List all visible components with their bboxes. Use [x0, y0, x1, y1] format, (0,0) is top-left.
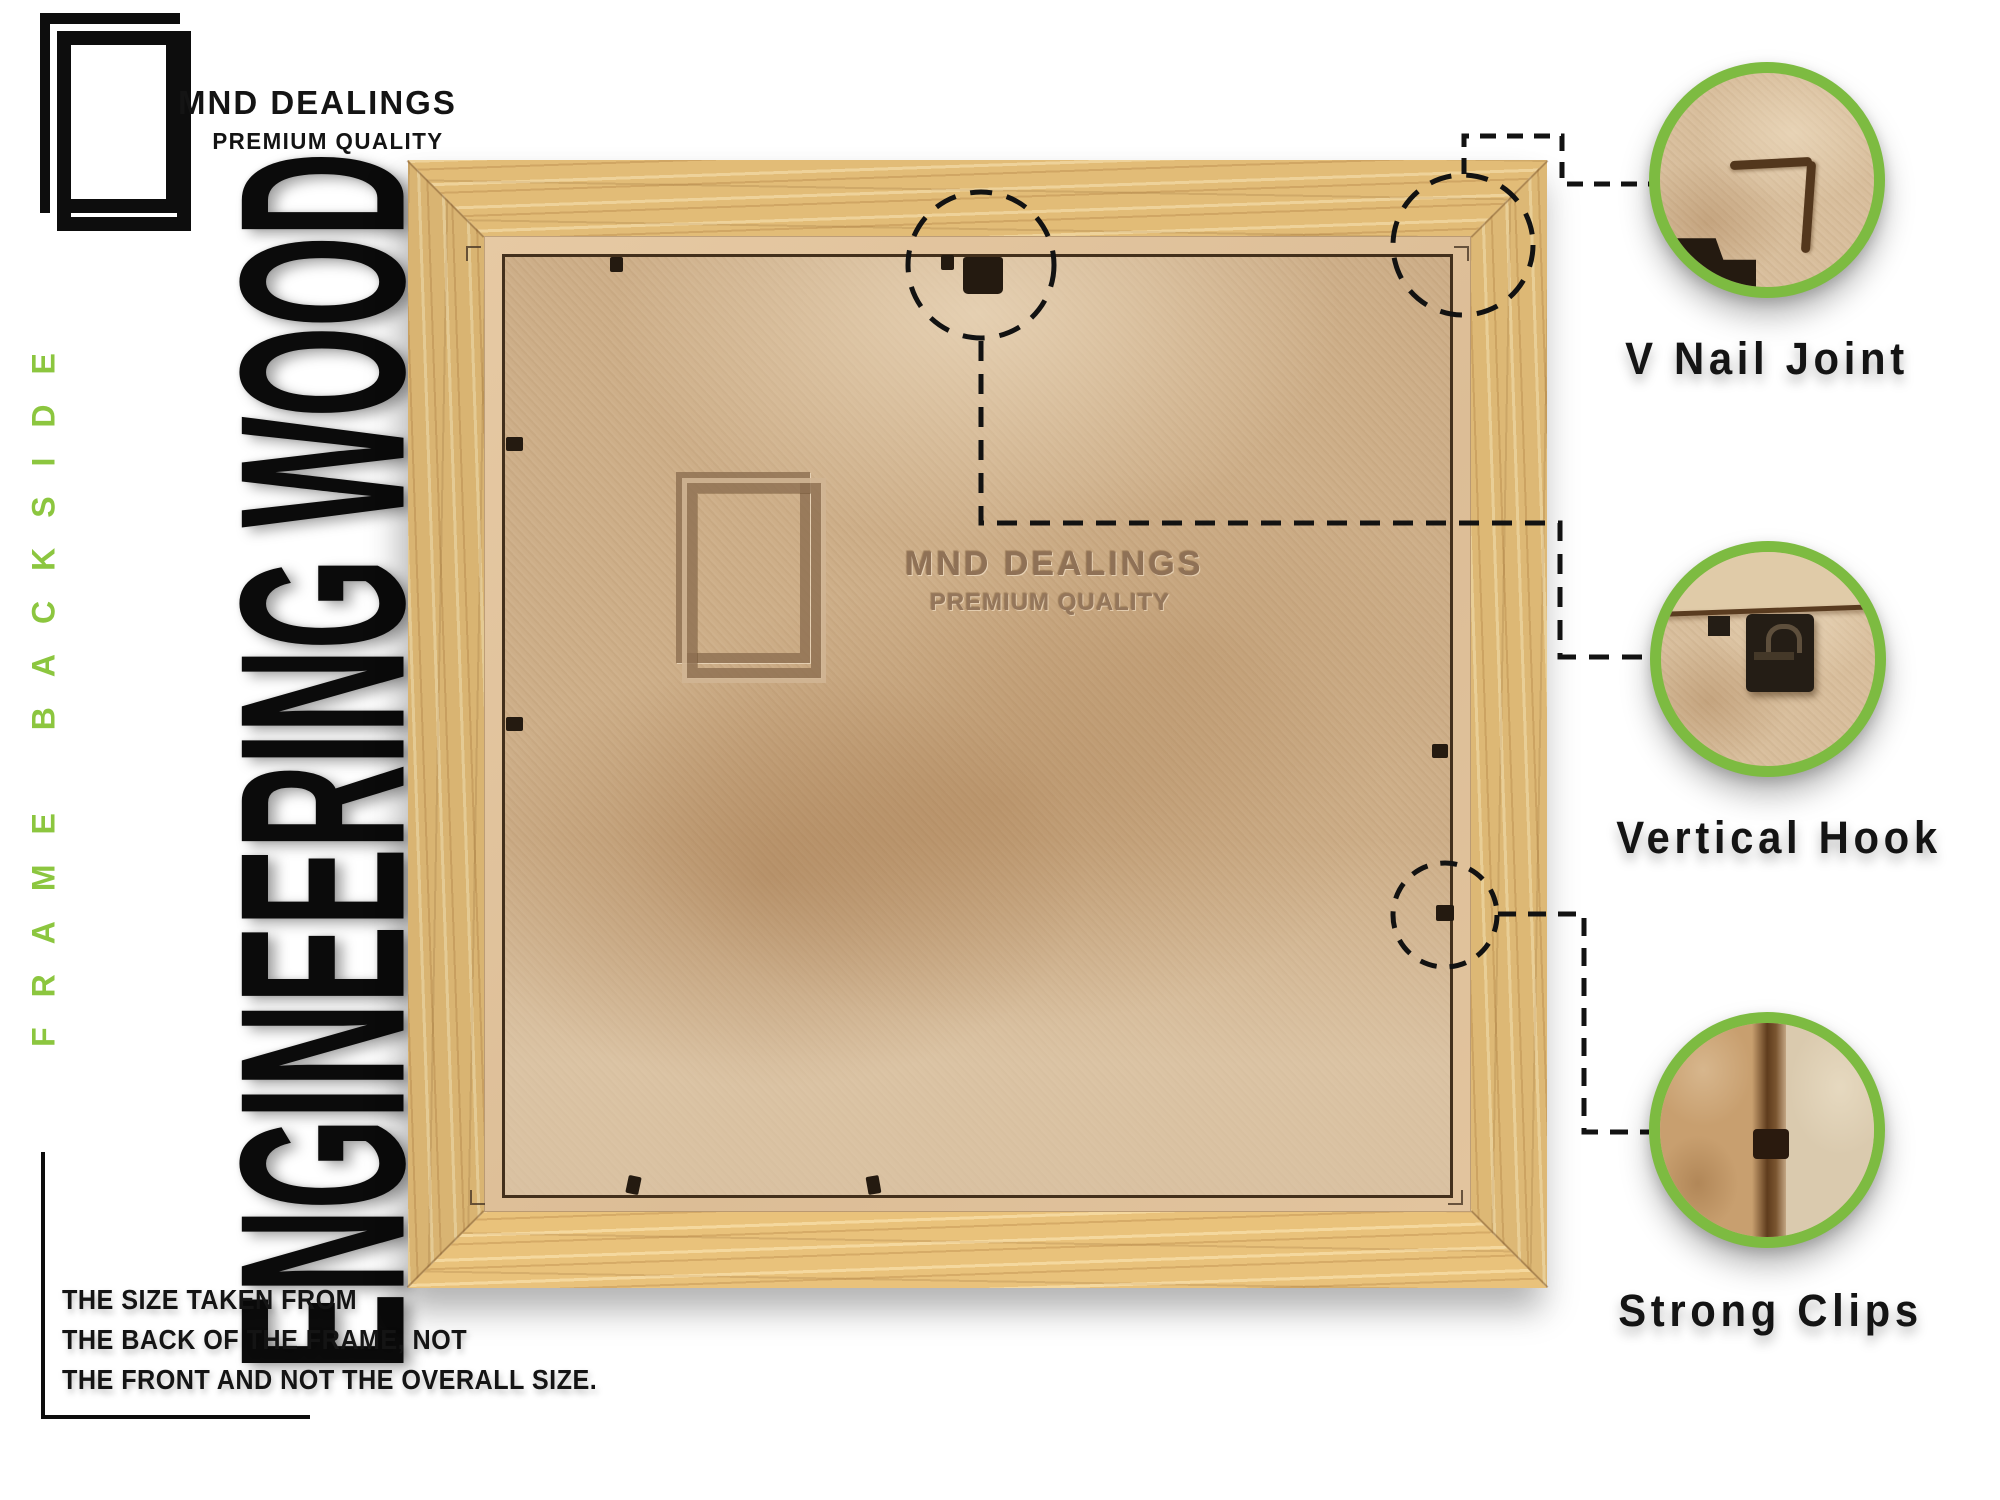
vnail-zoom-inset [1649, 62, 1885, 298]
side-label-text: FRAME BACKSIDE [26, 323, 63, 1047]
brand-tagline: PREMIUM QUALITY [183, 128, 474, 155]
disclaimer-line: THE FRONT AND NOT THE OVERALL SIZE. [62, 1360, 602, 1400]
watermark-brand-name: MND DEALINGS [905, 545, 1195, 584]
watermark-logo-icon [687, 483, 821, 678]
disclaimer-line: THE BACK OF THE FRAME, NOT [62, 1320, 602, 1360]
disclaimer-line: THE SIZE TAKEN FROM [62, 1280, 602, 1320]
clip-icon [1708, 616, 1730, 636]
hook-arch-detail [1766, 624, 1802, 653]
clip-icon [1432, 744, 1448, 758]
v-nail-mark-icon [470, 1190, 485, 1205]
v-nail-mark-icon [466, 246, 481, 261]
clip-icon [941, 255, 954, 270]
brand-logo-frame-icon [57, 31, 191, 231]
hanging-hook-icon [963, 257, 1003, 294]
watermark-brand-tagline: PREMIUM QUALITY [905, 589, 1195, 617]
rabbet-lip-edge [1654, 542, 1886, 614]
hook-zoom-inset [1650, 541, 1886, 777]
size-disclaimer-text: THE SIZE TAKEN FROM THE BACK OF THE FRAM… [62, 1280, 602, 1400]
clips-zoom-inset [1649, 1012, 1885, 1248]
frame-wood-right [1471, 160, 1547, 1288]
clip-icon [506, 437, 523, 451]
clip-icon [1436, 905, 1454, 921]
clip-icon [506, 717, 523, 731]
brand-header: MND DEALINGS PREMIUM QUALITY [178, 84, 478, 155]
callout-label-vertical-hook: Vertical Hook [1616, 812, 1914, 864]
brand-name: MND DEALINGS [178, 84, 478, 122]
frame-wood-left [408, 160, 484, 1288]
vertical-hook-icon [1746, 614, 1814, 692]
v-nail-mark-icon [1454, 246, 1469, 261]
hook-slot-detail [1754, 652, 1794, 660]
watermark-text: MND DEALINGS PREMIUM QUALITY [905, 545, 1195, 617]
clip-icon [610, 257, 623, 272]
mdf-backing-board [502, 254, 1453, 1198]
product-infographic: MND DEALINGS PREMIUM QUALITY FRAME BACKS… [0, 0, 2000, 1500]
callout-label-strong-clips: Strong Clips [1618, 1285, 1916, 1337]
size-disclaimer: THE SIZE TAKEN FROM THE BACK OF THE FRAM… [41, 1152, 310, 1419]
v-nail-mark-icon [1448, 1190, 1463, 1205]
strong-clip-icon [1753, 1129, 1789, 1159]
frame-wood-bottom [408, 1212, 1547, 1288]
frame-photo: MND DEALINGS PREMIUM QUALITY [408, 160, 1547, 1288]
frame-wood-top [408, 160, 1547, 236]
wood-speck [1860, 1181, 1872, 1188]
lip-texture [1786, 1023, 1876, 1237]
callout-label-v-nail-joint: V Nail Joint [1618, 333, 1916, 385]
